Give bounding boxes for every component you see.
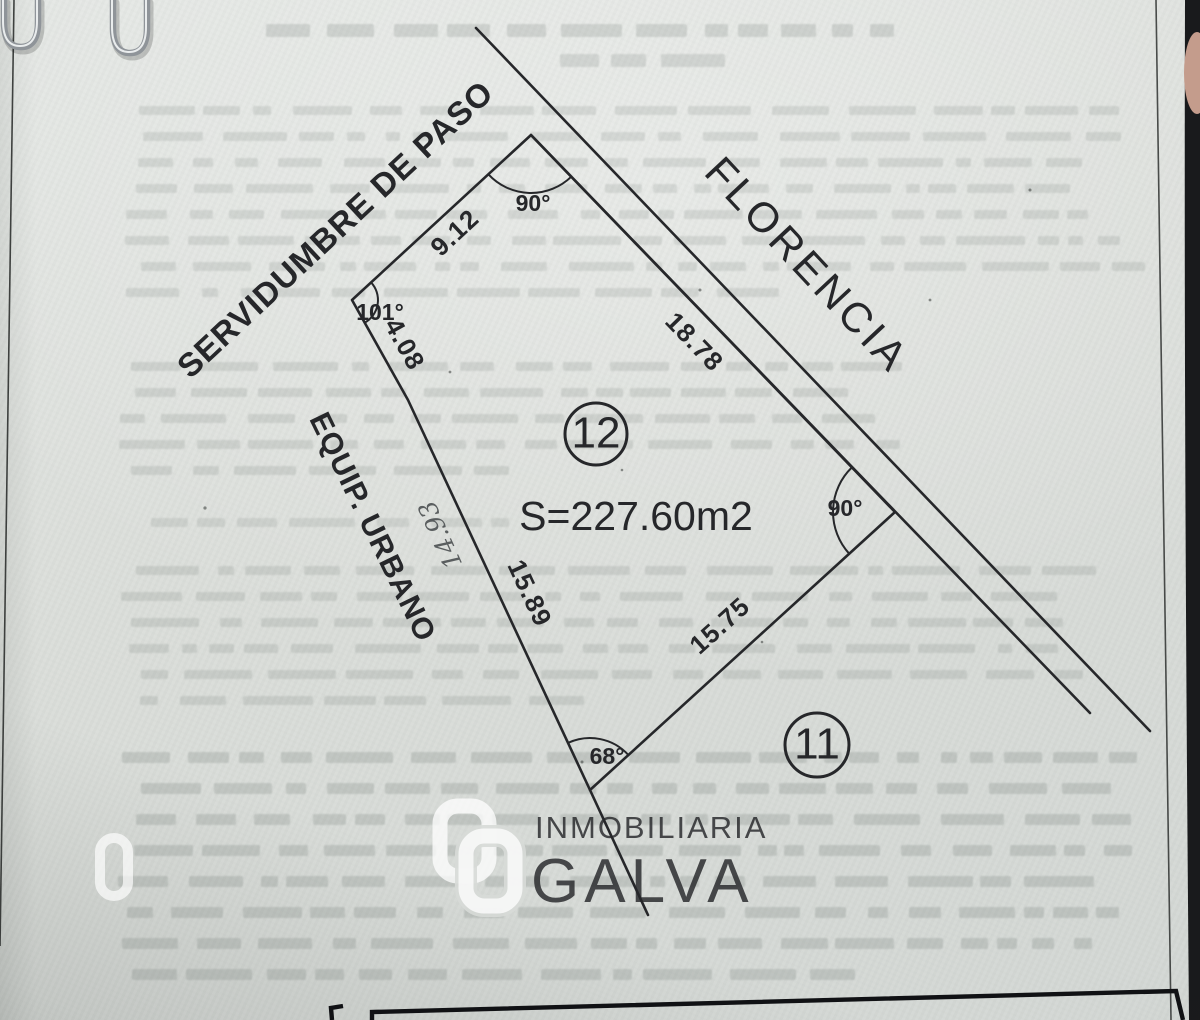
angle-label-right: 90°	[828, 495, 863, 521]
paperclip-right	[112, 0, 149, 56]
angle-label-bottom: 68°	[590, 743, 625, 769]
background-behind-page	[1185, 0, 1200, 1020]
lot-11-number: 11	[794, 720, 840, 769]
page-border-left	[0, 0, 14, 946]
survey-diagram: 90° 101° 90° 68° 9.12 4.08 15.89 15.75 1…	[0, 0, 1200, 1020]
street-name-label: FLORENCIA	[696, 148, 919, 382]
paperclip-left	[3, 0, 40, 50]
bottom-table-lines	[331, 991, 1183, 1020]
west-boundary-extension	[590, 790, 648, 915]
paperclips	[3, 0, 149, 56]
street-outer-edge	[476, 28, 1150, 731]
dimension-northwest: 9.12	[424, 203, 484, 262]
bottom-table-left-cell	[331, 1006, 343, 1020]
lot-number-badge-11: 11	[785, 713, 849, 777]
bottom-table-main-cell	[372, 991, 1183, 1020]
page-border-right	[1156, 0, 1171, 1020]
dimension-west-upper: 4.08	[379, 313, 432, 375]
dimension-front: 18.78	[659, 306, 729, 377]
lot-boundary-lines	[352, 28, 1150, 915]
scanned-document-photo: 90° 101° 90° 68° 9.12 4.08 15.89 15.75 1…	[0, 0, 1200, 1020]
lot-number-badge-12: 12	[565, 403, 627, 465]
lot-12-number: 12	[572, 409, 621, 458]
angle-label-top: 90°	[516, 190, 551, 216]
lot-area-label: S=227.60m2	[519, 493, 753, 539]
